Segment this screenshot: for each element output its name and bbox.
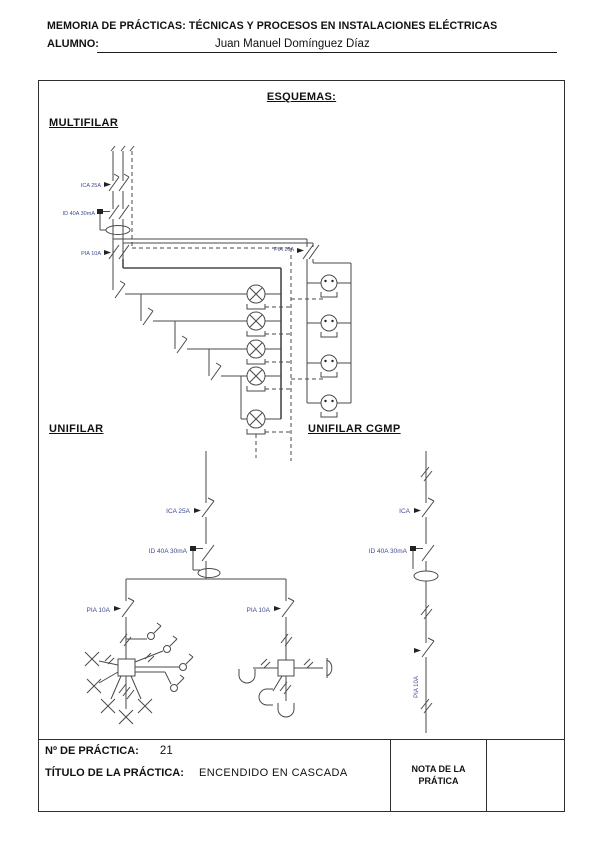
footer-table: Nº DE PRÁCTICA: 21 TÍTULO DE LA PRÁCTICA… bbox=[39, 739, 564, 811]
multifilar-id-label: ID 40A 30mA bbox=[63, 211, 96, 217]
student-label: ALUMNO: bbox=[47, 38, 99, 50]
earth-dashed-lines bbox=[132, 248, 323, 461]
lamp-icon bbox=[247, 410, 281, 434]
right-branch bbox=[274, 579, 294, 660]
footer-left-cell: Nº DE PRÁCTICA: 21 TÍTULO DE LA PRÁCTICA… bbox=[39, 740, 390, 811]
socket-outlet-icon bbox=[259, 689, 273, 705]
section-title: ESQUEMAS: bbox=[39, 91, 564, 103]
grade-label-line1: NOTA DE LA bbox=[412, 764, 466, 775]
practice-number-value: 21 bbox=[160, 745, 173, 757]
lamp-point-icon bbox=[119, 676, 133, 724]
document-title: MEMORIA DE PRÁCTICAS: TÉCNICAS Y PROCESO… bbox=[47, 20, 562, 32]
multifilar-diagram: ICA 25A ID 40A 30mA bbox=[61, 143, 381, 473]
grade-label-line2: PRÁTICA bbox=[412, 776, 466, 787]
grade-label-cell: NOTA DE LA PRÁTICA bbox=[390, 740, 486, 811]
unifilar-ica-label: ICA 25A bbox=[166, 508, 191, 515]
practice-number-label: Nº DE PRÁCTICA: bbox=[45, 745, 139, 757]
switch-icon bbox=[135, 654, 193, 671]
student-name: Juan Manuel Domínguez Díaz bbox=[215, 38, 370, 50]
unifilar-pia-left-label: PIA 10A bbox=[87, 607, 111, 614]
lighting-circuit-icons bbox=[85, 623, 193, 724]
neutral-bus bbox=[123, 259, 281, 419]
student-row: ALUMNO: Juan Manuel Domínguez Díaz bbox=[47, 38, 557, 54]
lamp-point-icon bbox=[101, 676, 121, 713]
differential-icon bbox=[97, 205, 130, 268]
socket-feeder-lines bbox=[113, 239, 313, 247]
document-page: MEMORIA DE PRÁCTICAS: TÉCNICAS Y PROCESO… bbox=[0, 0, 600, 848]
feed-line bbox=[421, 451, 432, 503]
ica-breaker-icon bbox=[194, 498, 214, 544]
socket-circuit-icons bbox=[239, 658, 332, 717]
socket-column bbox=[307, 275, 351, 417]
junction-box bbox=[278, 660, 294, 676]
cascade-switches-icon bbox=[115, 281, 247, 419]
switch-icon bbox=[148, 623, 162, 640]
heading-multifilar: MULTIFILAR bbox=[49, 117, 118, 129]
cgmp-ica-label: ICA bbox=[399, 508, 411, 515]
differential-icon bbox=[410, 545, 438, 643]
socket-outlet-icon bbox=[239, 669, 255, 683]
ica-breaker-icon bbox=[414, 498, 434, 544]
socket-outlet-icon bbox=[327, 658, 332, 678]
socket-outlet-icon bbox=[278, 703, 294, 717]
multifilar-pia10-label: PIA 10A bbox=[81, 251, 101, 257]
practice-title-label: TÍTULO DE LA PRÁCTICA: bbox=[45, 767, 184, 779]
cgmp-id-label: ID 40A 30mA bbox=[369, 548, 408, 555]
unifilar-id-label: ID 40A 30mA bbox=[149, 548, 188, 555]
lamp-point-icon bbox=[131, 676, 152, 713]
schematics-frame: ESQUEMAS: MULTIFILAR UNIFILAR UNIFILAR C… bbox=[38, 80, 565, 812]
lamp-icon bbox=[247, 367, 281, 391]
student-name-underline bbox=[97, 52, 557, 53]
lamp-icon bbox=[247, 312, 281, 336]
multifilar-ica-label: ICA 25A bbox=[81, 183, 102, 189]
lamp-icon bbox=[247, 285, 281, 309]
socket-icon bbox=[307, 315, 351, 337]
left-branch bbox=[114, 579, 147, 659]
unifilar-pia-right-label: PIA 10A bbox=[247, 607, 271, 614]
unifilar-cgmp-diagram: ICA ID 40A 30mA PIA 10A bbox=[351, 443, 461, 743]
lamp-point-icon bbox=[87, 672, 118, 693]
differential-icon bbox=[190, 545, 220, 579]
socket-icon bbox=[307, 395, 351, 417]
socket-icon bbox=[307, 355, 351, 377]
grade-value-cell bbox=[486, 740, 564, 811]
unifilar-diagram: ICA 25A ID 40A 30mA PIA 10A bbox=[61, 443, 351, 743]
switch-icon bbox=[135, 672, 184, 692]
cgmp-pia-label: PIA 10A bbox=[414, 676, 420, 698]
switch-icon bbox=[135, 636, 177, 662]
socket-icon bbox=[307, 275, 351, 297]
ica-breaker-icon bbox=[104, 174, 129, 209]
practice-title-value: ENCENDIDO EN CASCADA bbox=[199, 767, 348, 779]
lamp-icon bbox=[247, 340, 281, 364]
junction-box bbox=[118, 659, 135, 676]
